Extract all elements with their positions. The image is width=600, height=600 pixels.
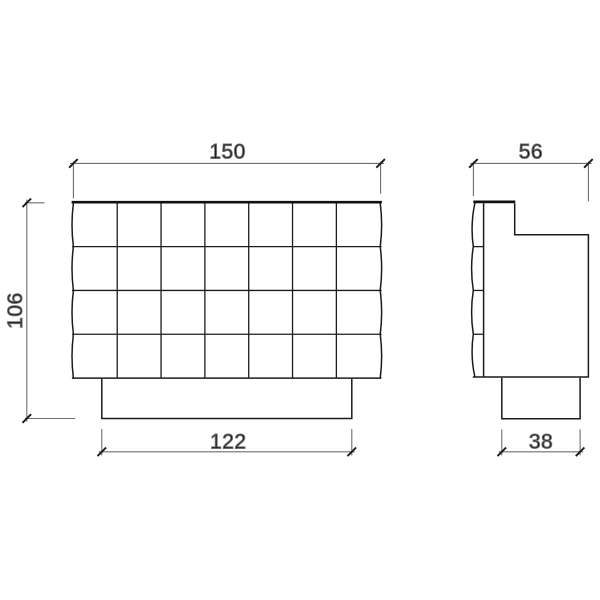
dimension-side-base-depth: 38 xyxy=(498,430,585,457)
dimension-front-height: 106 xyxy=(4,199,75,423)
dimension-front-base-width: 122 xyxy=(98,429,357,456)
front-cushion-grid xyxy=(72,203,382,378)
dimension-front-height-label: 106 xyxy=(4,292,27,329)
side-cushion-junction-lines xyxy=(473,247,484,335)
side-base-plinth xyxy=(502,378,580,419)
front-base-plinth xyxy=(102,379,352,419)
front-view xyxy=(72,202,382,418)
dimension-front-width-label: 150 xyxy=(209,140,246,163)
dimension-side-depth-label: 56 xyxy=(519,140,543,163)
dimension-side-depth: 56 xyxy=(469,140,593,201)
drawing-canvas: 150 56 106 122 38 xyxy=(0,0,600,600)
side-view xyxy=(472,202,589,419)
dimension-front-base-width-label: 122 xyxy=(210,431,247,454)
technical-drawing: 150 56 106 122 38 xyxy=(0,0,600,600)
side-outline xyxy=(473,203,589,377)
dimension-side-base-depth-label: 38 xyxy=(529,431,553,454)
dimension-front-width: 150 xyxy=(69,140,385,198)
